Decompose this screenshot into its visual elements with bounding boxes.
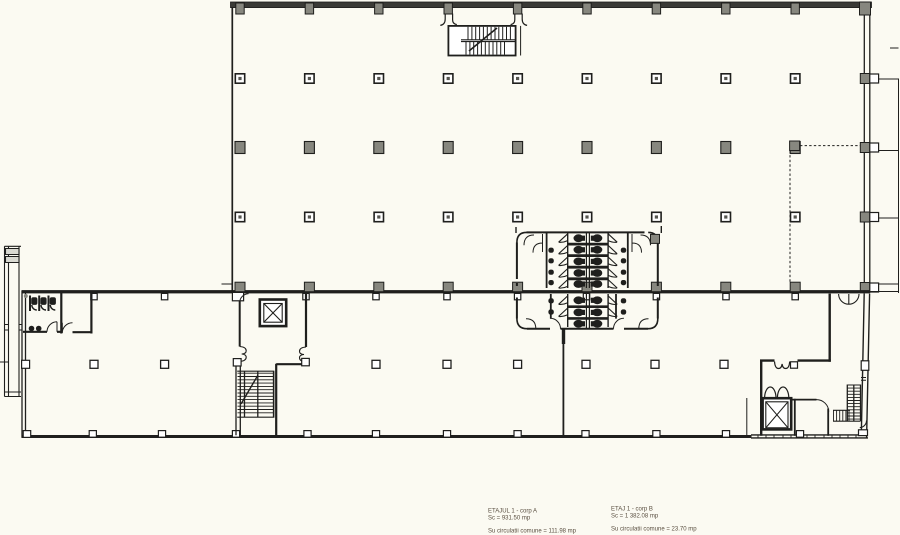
svg-text:Su circulatii comune = 23.70 m: Su circulatii comune = 23.70 mp [611,527,697,533]
svg-text:ETAJUL 1 - corp A: ETAJUL 1 - corp A [488,509,537,515]
svg-text:Sc = 1 382.08 mp: Sc = 1 382.08 mp [611,514,659,520]
svg-text:ETAJ 1 - corp B: ETAJ 1 - corp B [611,507,653,513]
svg-text:Sc = 931.50 mp: Sc = 931.50 mp [488,516,531,522]
svg-text:Su circulatii comune = 111.98: Su circulatii comune = 111.98 mp [488,529,577,535]
